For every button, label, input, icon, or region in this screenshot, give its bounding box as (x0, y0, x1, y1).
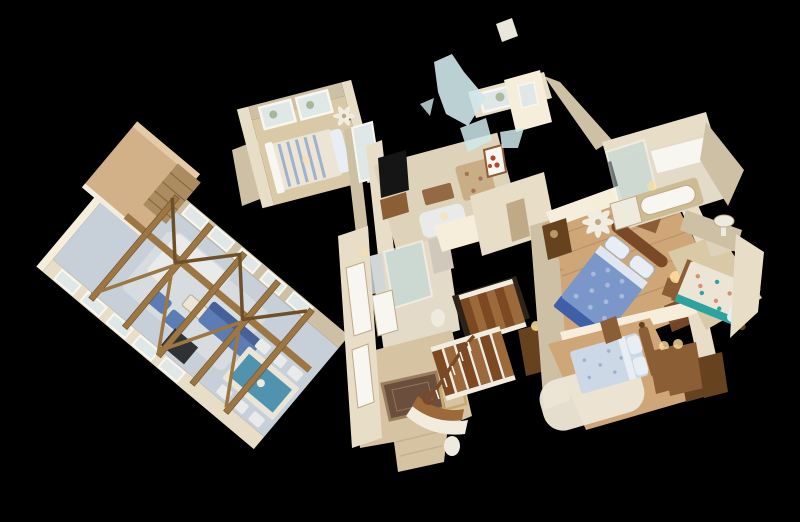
art-flower (488, 164, 492, 168)
mesh-shard (500, 128, 524, 148)
dollhouse-3d-view[interactable] (0, 0, 800, 522)
sconce-glow (302, 156, 310, 164)
fan-hub (342, 114, 346, 118)
art-frame (484, 145, 506, 177)
toilet (431, 309, 445, 327)
art-flower (494, 162, 499, 167)
bathroom (602, 112, 744, 230)
den-art-frame (484, 145, 506, 177)
sconce-glow (440, 212, 448, 220)
lamp-glow (647, 181, 657, 191)
window (518, 82, 538, 108)
white-fragment (496, 18, 518, 42)
pedestal-top (714, 215, 734, 227)
fan-hub (595, 219, 601, 225)
sconce-glow (550, 230, 558, 238)
window-foliage (496, 93, 505, 102)
statue (444, 436, 460, 456)
art-flower (490, 155, 495, 160)
sconce-glow (360, 248, 368, 256)
mesh-shard (420, 98, 434, 116)
roofline-wall (544, 76, 612, 150)
lamp-glow (673, 339, 683, 349)
ceiling-fan (582, 206, 614, 238)
wall-tv (378, 150, 409, 198)
